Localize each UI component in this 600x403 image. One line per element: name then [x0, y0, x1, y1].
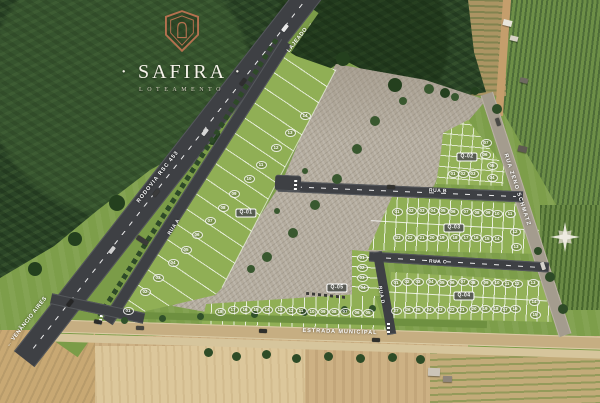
rua-c-label: RUA C	[429, 258, 447, 265]
masterplan-scene: RODOVIA RSC 453 ← VENÂNCIO AIRES LAJEADO…	[0, 0, 600, 403]
compass-rose-icon	[550, 222, 580, 257]
logo-block: · SAFIRA · LOTEAMENTO	[117, 10, 247, 93]
crop-rows-bottom-right	[430, 352, 600, 403]
vehicle	[372, 338, 380, 342]
vehicle	[136, 326, 144, 330]
building	[443, 376, 452, 382]
logo-subtitle: LOTEAMENTO	[117, 87, 247, 93]
crosswalk-rua-d	[387, 323, 390, 334]
crosswalk-rua-b	[294, 180, 297, 192]
vehicle	[387, 185, 395, 189]
rua-c-center-line	[375, 256, 544, 267]
vehicle	[259, 329, 267, 333]
logo-title: · SAFIRA ·	[117, 61, 247, 84]
rua-b-label: RUA B	[429, 188, 447, 195]
building	[428, 368, 440, 376]
shed	[517, 145, 527, 153]
farmland-light-strip	[95, 346, 305, 403]
logo-shield-icon	[117, 10, 247, 57]
rua-c-road	[369, 252, 549, 273]
tree-clumps-gravel	[0, 0, 10, 10]
rua-b-west-cap	[275, 174, 302, 191]
